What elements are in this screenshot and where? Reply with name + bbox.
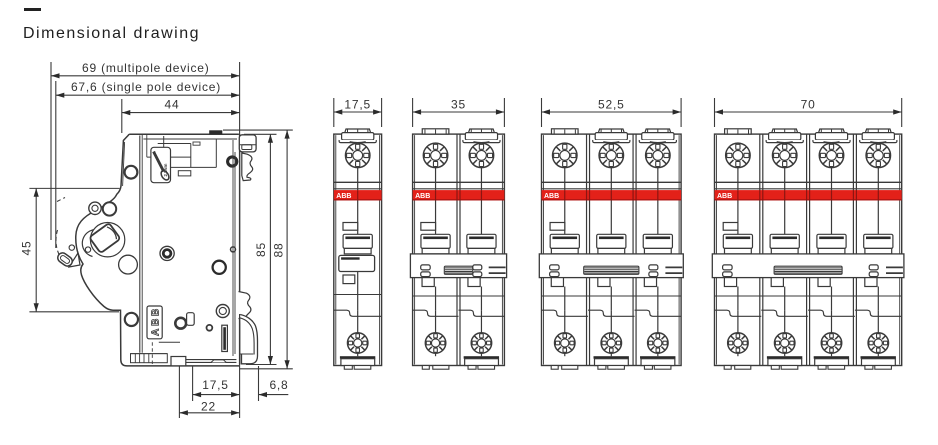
svg-text:85: 85 (254, 242, 268, 257)
svg-text:52,5: 52,5 (598, 98, 625, 112)
svg-text:17,5: 17,5 (344, 98, 371, 112)
svg-text:44: 44 (165, 98, 180, 112)
svg-text:35: 35 (451, 98, 466, 112)
svg-text:ABB: ABB (544, 193, 559, 200)
svg-text:ABB: ABB (415, 193, 430, 200)
svg-text:ABB: ABB (336, 193, 351, 200)
svg-text:67,6 (single pole device): 67,6 (single pole device) (71, 80, 221, 94)
svg-text:70: 70 (801, 98, 816, 112)
svg-text:17,5: 17,5 (202, 378, 229, 392)
svg-text:69 (multipole device): 69 (multipole device) (82, 61, 210, 75)
svg-text:22: 22 (201, 400, 216, 414)
svg-text:6,8: 6,8 (269, 378, 288, 392)
svg-text:45: 45 (20, 241, 34, 256)
svg-text:88: 88 (271, 243, 285, 258)
svg-text:2.5Nm: 2.5Nm (163, 163, 168, 176)
svg-text:ABB: ABB (717, 193, 732, 200)
svg-text:ABB: ABB (151, 309, 162, 336)
